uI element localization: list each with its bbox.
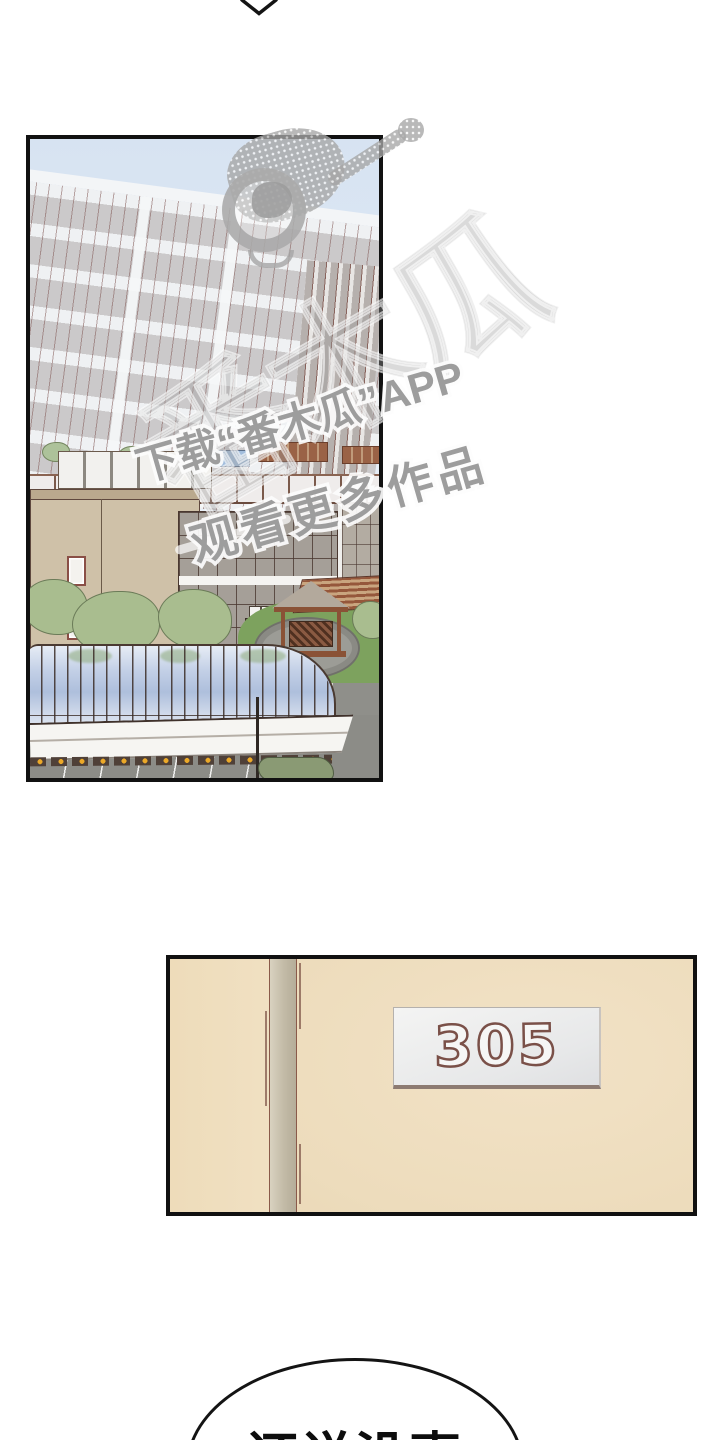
door-frame-line xyxy=(299,963,301,1029)
tree xyxy=(158,589,232,649)
speech-bubble-tail-icon xyxy=(240,0,278,16)
terrace-pergola xyxy=(342,446,382,464)
fascia-divider xyxy=(30,732,354,742)
glass-reflection xyxy=(174,514,292,556)
wall xyxy=(170,959,269,1212)
door-frame-line xyxy=(299,1144,301,1204)
gazebo-post xyxy=(337,612,341,652)
speech-bubble: 还说没事 xyxy=(186,1358,524,1440)
speech-bubble-text: 还说没事 xyxy=(247,1415,463,1440)
canopy-rail xyxy=(28,715,328,717)
building-panel xyxy=(26,135,383,782)
room-number-plate: 305 xyxy=(393,1007,601,1089)
door-frame-line xyxy=(265,1011,267,1106)
gazebo-lattice xyxy=(289,621,333,647)
bush xyxy=(258,757,334,781)
rooftop-ac-units xyxy=(58,451,212,489)
comic-page: 番木瓜 下载“番木瓜”APP 下载“番木瓜”APP 观看更多作品 观看更多作品 … xyxy=(0,0,720,1440)
mascot-fist-icon xyxy=(398,118,424,142)
room-number: 305 xyxy=(433,1013,560,1080)
terrace-pergola xyxy=(258,442,328,462)
door-frame-strip xyxy=(269,959,297,1212)
door-panel: 305 xyxy=(166,955,697,1216)
